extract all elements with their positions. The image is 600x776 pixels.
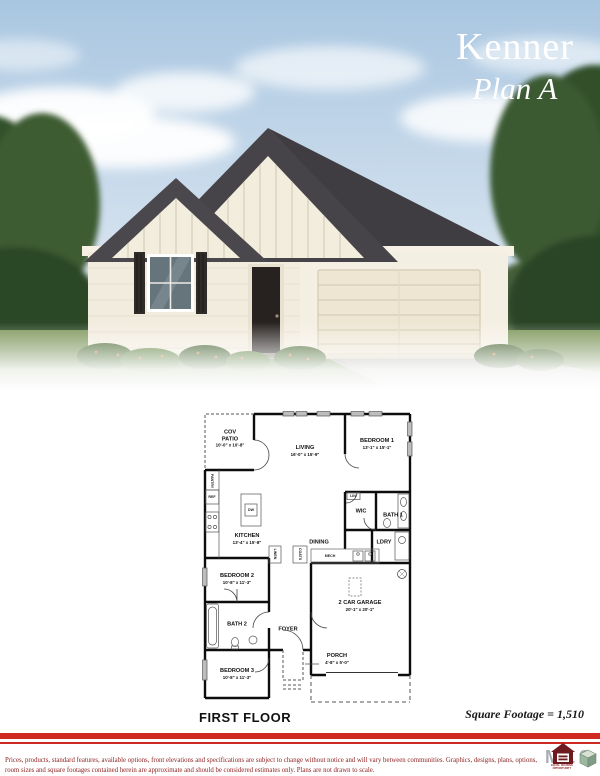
label-coats: COATS (298, 548, 302, 560)
plan-title-block: Kenner Plan A (415, 28, 600, 107)
room-label-cov-patio: COV PATIO 10'-0" x 10'-8" (216, 430, 245, 449)
cube-icon (579, 749, 597, 768)
label-ref: REF (208, 495, 215, 499)
label-linen: LINEN (273, 549, 277, 560)
disclaimer-text: Prices, products, standard features, ava… (5, 756, 553, 776)
room-label-bath-1: BATH 1 (383, 513, 403, 520)
room-label-bath-2: BATH 2 (227, 622, 247, 629)
photo-fade (0, 322, 600, 390)
room-label-bedroom-3: BEDROOM 3 10'-8" x 11'-3" (220, 668, 254, 680)
room-label-kitchen: KITCHEN 13'-4" x 15'-8" (233, 533, 262, 545)
square-footage-note: Square Footage = 1,510 (465, 707, 584, 722)
front-window (134, 252, 207, 314)
room-label-dining: DINING (309, 540, 329, 547)
red-divider (0, 733, 600, 744)
room-label-foyer: FOYER (278, 627, 297, 634)
floor-plan: COV PATIO 10'-0" x 10'-8" LIVING 16'-0" … (197, 406, 419, 736)
plan-name: Kenner (415, 28, 600, 68)
label-pantry: PANTRY (210, 474, 214, 488)
right-shutter (196, 252, 207, 314)
builder-logo: MLS EQUAL HOUSING OPPORTUNITY (544, 742, 598, 774)
house-rendering: Kenner Plan A (0, 0, 600, 390)
label-mech: MECH (325, 554, 336, 558)
room-label-living: LIVING 16'-0" x 15'-9" (291, 445, 320, 457)
label-lin: LIN (350, 494, 356, 498)
room-label-wic: WIC (356, 509, 367, 516)
room-label-ldry: LDRY (376, 540, 391, 547)
equal-housing-icon (550, 743, 576, 765)
room-label-bedroom-2: BEDROOM 2 10'-8" x 11'-3" (220, 573, 254, 585)
room-label-porch: PORCH 4'-8" x 5'-0" (325, 653, 349, 665)
equal-housing-text: EQUAL HOUSING OPPORTUNITY (547, 765, 577, 771)
left-shutter (134, 252, 145, 314)
room-label-garage: 2 CAR GARAGE 20'-1" x 20'-1" (339, 600, 382, 612)
first-floor-label: FIRST FLOOR (199, 710, 291, 725)
label-dw: DW (248, 508, 254, 512)
room-label-bedroom-1: BEDROOM 1 13'-1" x 15'-1" (360, 438, 394, 450)
plan-variant: Plan A (415, 71, 600, 107)
